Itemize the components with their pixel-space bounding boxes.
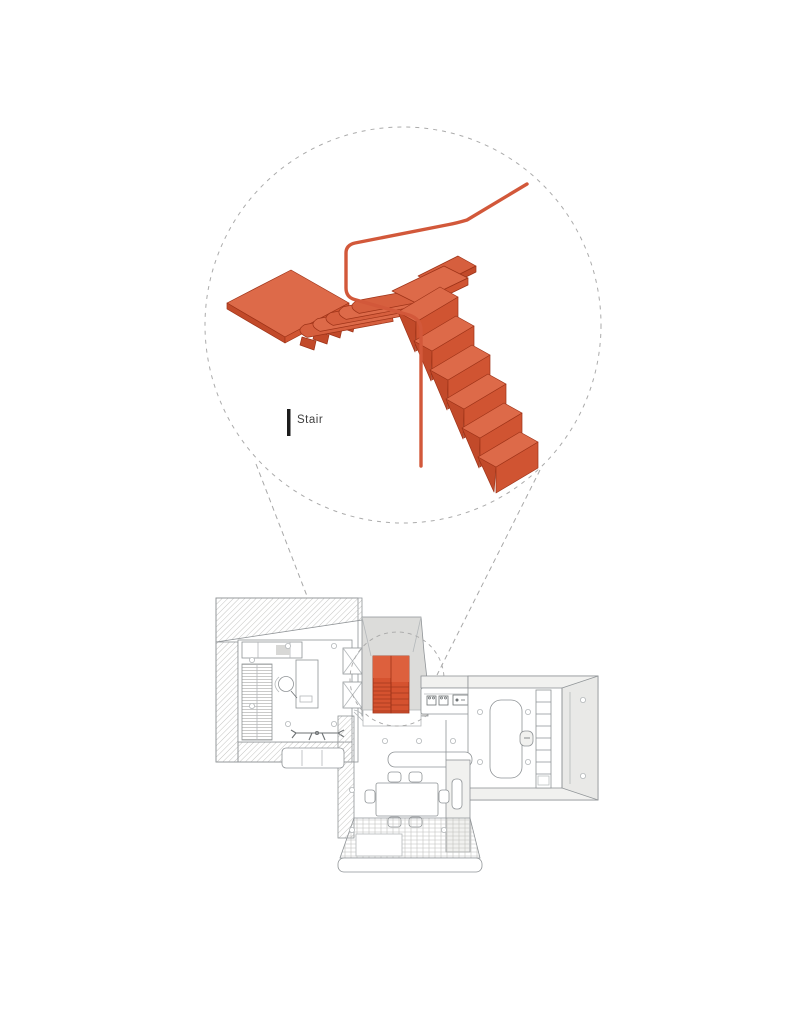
right-room (468, 676, 598, 800)
terrace-outer-band (338, 858, 482, 872)
balcony-band (282, 748, 344, 768)
wardrobe (242, 642, 302, 658)
dining-table (376, 783, 438, 816)
terrace-inset (356, 834, 402, 856)
desk-chair (279, 677, 294, 692)
desk (296, 660, 318, 708)
island (490, 700, 522, 778)
label-marker (287, 409, 291, 436)
stair-lower-flight (398, 287, 538, 493)
cooktop (453, 695, 468, 705)
dining-left-wall-hatch (338, 716, 354, 838)
diagram-canvas: Stair (0, 0, 810, 1013)
stair-label: Stair (287, 409, 323, 436)
roof-hatch-left (216, 642, 238, 762)
stair-axon (227, 184, 538, 493)
label-text: Stair (297, 414, 323, 426)
island-appliance (520, 731, 533, 746)
shelf-column (536, 690, 551, 788)
architectural-diagram: Stair (0, 0, 810, 1013)
right-wall-slab (562, 676, 598, 800)
stair-plan (373, 656, 409, 713)
leader-line-right (437, 470, 540, 675)
floor-plan (216, 598, 598, 872)
window (452, 779, 462, 809)
